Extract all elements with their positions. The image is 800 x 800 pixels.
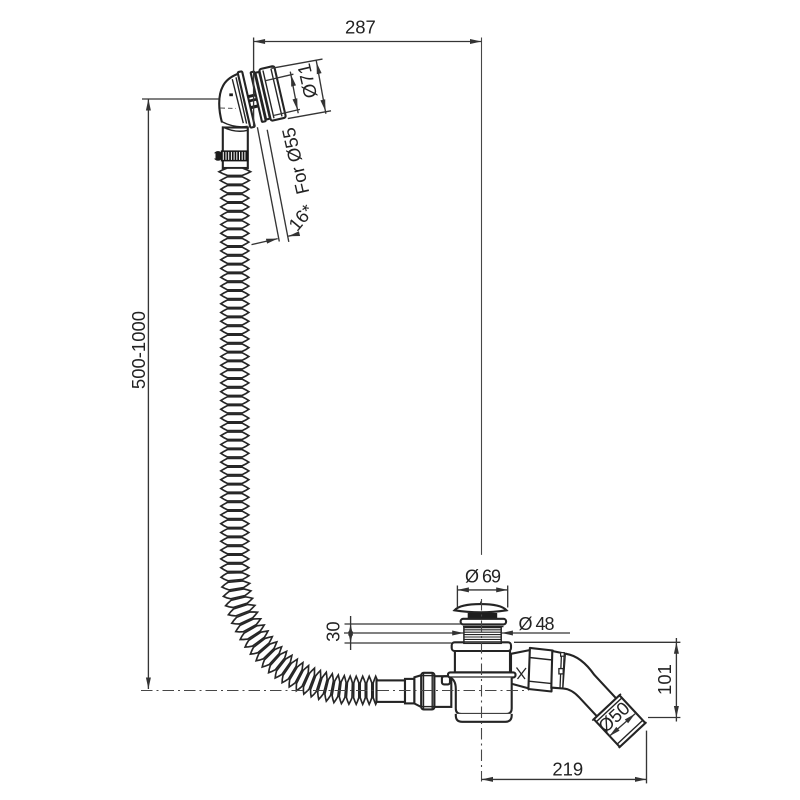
svg-text:Ø 48: Ø 48 xyxy=(518,614,554,634)
svg-text:Ø 69: Ø 69 xyxy=(465,567,501,587)
svg-text:500-1000: 500-1000 xyxy=(128,311,149,389)
svg-text:101: 101 xyxy=(654,664,675,695)
svg-text:219: 219 xyxy=(552,759,583,780)
svg-text:30: 30 xyxy=(323,621,344,642)
svg-text:287: 287 xyxy=(345,17,376,38)
